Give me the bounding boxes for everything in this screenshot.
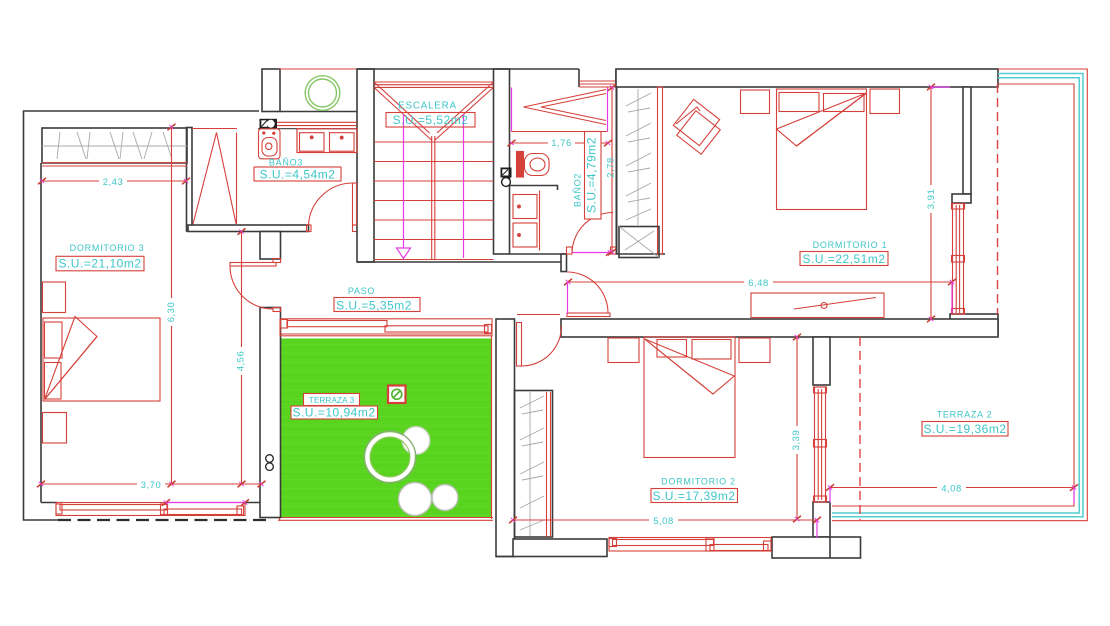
svg-text:1,76: 1,76 xyxy=(551,138,572,149)
svg-text:4,08: 4,08 xyxy=(941,484,962,495)
svg-text:DORMITORIO 1: DORMITORIO 1 xyxy=(813,240,888,250)
svg-text:DORMITORIO 3: DORMITORIO 3 xyxy=(70,243,145,253)
svg-text:ESCALERA: ESCALERA xyxy=(398,101,457,112)
svg-text:S.U.=4,54m2: S.U.=4,54m2 xyxy=(260,168,336,182)
svg-text:5,08: 5,08 xyxy=(653,516,674,527)
svg-text:3,39: 3,39 xyxy=(791,430,802,451)
svg-text:S.U.=21,10m2: S.U.=21,10m2 xyxy=(58,257,141,271)
svg-text:S.U.=17,39m2: S.U.=17,39m2 xyxy=(652,489,735,503)
svg-text:BAÑO3: BAÑO3 xyxy=(269,158,303,168)
svg-text:6,30: 6,30 xyxy=(166,302,177,323)
svg-text:S.U.=5,52m2: S.U.=5,52m2 xyxy=(393,113,469,127)
svg-text:4,56: 4,56 xyxy=(236,351,247,372)
svg-text:TERRAZA 3: TERRAZA 3 xyxy=(309,396,355,405)
svg-text:S.U.=22,51m2: S.U.=22,51m2 xyxy=(802,252,885,266)
svg-text:3,91: 3,91 xyxy=(926,189,937,210)
svg-text:2,43: 2,43 xyxy=(103,177,124,188)
svg-text:TERRAZA 2: TERRAZA 2 xyxy=(937,410,993,420)
svg-text:6,48: 6,48 xyxy=(748,278,769,289)
svg-text:S.U.=5,35m2: S.U.=5,35m2 xyxy=(336,299,412,313)
svg-text:2,78: 2,78 xyxy=(606,157,617,178)
svg-text:PASO: PASO xyxy=(348,286,375,296)
svg-text:S.U.=19,36m2: S.U.=19,36m2 xyxy=(923,422,1006,436)
svg-text:S.U.=4,79m2: S.U.=4,79m2 xyxy=(585,137,599,213)
svg-text:S.U.=10,94m2: S.U.=10,94m2 xyxy=(292,406,375,420)
svg-text:DORMITORIO 2: DORMITORIO 2 xyxy=(661,477,736,487)
svg-text:3,70: 3,70 xyxy=(141,480,162,491)
svg-text:BAÑO2: BAÑO2 xyxy=(572,173,582,207)
